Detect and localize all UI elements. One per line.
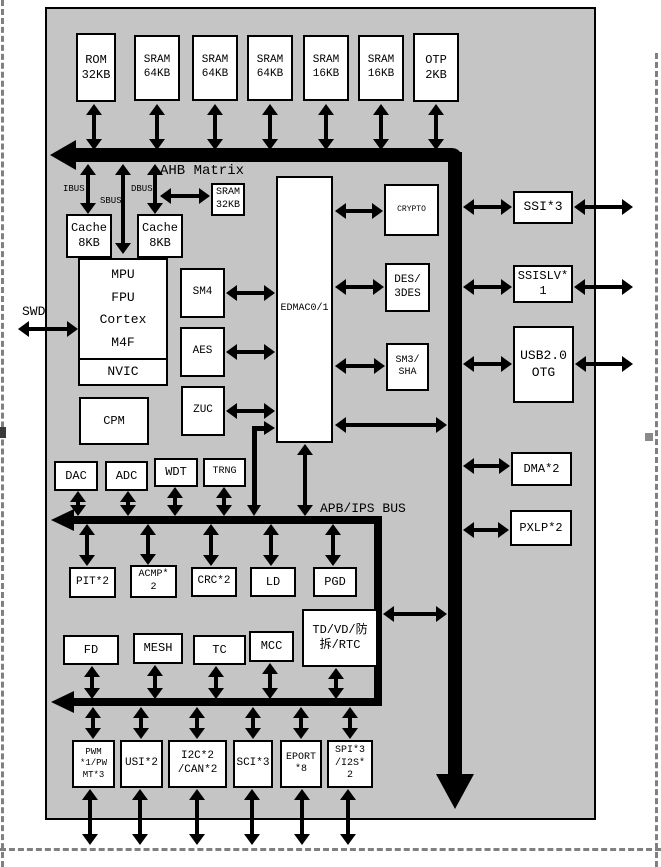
block-trng: TRNG — [203, 458, 246, 487]
arrow-fd-apb — [84, 666, 100, 699]
block-sram-16kb-2: SRAM 16KB — [358, 35, 404, 101]
block-sci: SCI*3 — [233, 740, 273, 788]
arrow-trng-apb — [216, 487, 232, 516]
arrow-apb-ld — [263, 524, 279, 566]
block-crc: CRC*2 — [191, 567, 237, 597]
arrow-ahb-dma — [463, 458, 510, 474]
block-otp: OTP 2KB — [413, 33, 459, 102]
block-mcc: MCC — [249, 631, 294, 662]
arrow-apb-eport — [293, 707, 309, 739]
block-eport: EPORT *8 — [280, 740, 322, 788]
arrow-sram1-ahb — [149, 104, 165, 150]
apb-ips-bus-label: APB/IPS BUS — [320, 501, 406, 516]
block-fd: FD — [63, 635, 119, 665]
arrow-usb-ext — [575, 356, 633, 372]
frame-handle-left[interactable] — [0, 427, 6, 438]
arrow-mesh-apb — [147, 665, 163, 699]
swd-label: SWD — [22, 304, 45, 319]
block-rom: ROM 32KB — [76, 33, 116, 102]
arrow-spi-ext — [340, 789, 356, 845]
block-crypto: CRYPTO — [384, 184, 439, 236]
arrow-apb-crc — [203, 524, 219, 566]
arrow-apb-pwm — [85, 707, 101, 739]
block-edmac: EDMAC0/1 — [276, 176, 333, 443]
cpu-fpu-label: FPU — [80, 290, 166, 306]
block-td-vd-rtc: TD/VD/防 拆/RTC — [302, 609, 378, 667]
arrow-apb-i2c — [189, 707, 205, 739]
block-sram-64kb-3: SRAM 64KB — [247, 35, 293, 101]
block-sram-16kb-1: SRAM 16KB — [303, 35, 349, 101]
arrow-ahb-ssislv — [463, 279, 512, 295]
block-spi-i2s: SPI*3 /I2S* 2 — [327, 740, 373, 788]
block-adc: ADC — [105, 461, 148, 491]
block-dac: DAC — [54, 461, 98, 491]
cpu-nvic-label: NVIC — [80, 358, 166, 384]
block-sram-64kb-1: SRAM 64KB — [134, 35, 180, 101]
block-cortex-m4f: MPU FPU Cortex M4F NVIC — [78, 258, 168, 386]
arrow-sram5-ahb — [373, 104, 389, 150]
block-usb-otg: USB2.0 OTG — [513, 326, 574, 403]
block-i2c-can: I2C*2 /CAN*2 — [168, 740, 227, 788]
arrow-sci-ext — [244, 789, 260, 845]
arrow-mcc-apb — [262, 663, 278, 699]
frame-dashed-bottom — [0, 848, 661, 851]
arrow-pwm-ext — [82, 789, 98, 845]
arrow-edmac-apb — [297, 444, 313, 516]
arrow-ssislv-ext — [574, 279, 633, 295]
arrow-tc-apb — [208, 666, 224, 699]
arrow-apb-acmp — [140, 524, 156, 565]
elbow-connector-right-arrowhead — [264, 421, 275, 435]
arrow-rom-ahb — [86, 104, 102, 150]
arrow-usi-ext — [132, 789, 148, 845]
ahb-bus-left-arrowhead — [50, 140, 76, 170]
elbow-connector-vertical — [252, 426, 257, 508]
block-zuc: ZUC — [181, 386, 225, 436]
block-ssislv: SSISLV* 1 — [513, 265, 573, 303]
block-cpm: CPM — [79, 397, 149, 445]
apb-bus-bottom-arrowhead — [51, 691, 74, 713]
arrow-swd — [18, 321, 78, 337]
block-wdt: WDT — [154, 458, 198, 487]
arrow-ssi-ext — [574, 199, 633, 215]
cpu-cortex-label: Cortex — [80, 312, 166, 328]
frame-handle-right[interactable] — [645, 433, 653, 441]
arrow-apb-pit — [79, 524, 95, 566]
arrow-sram3-ahb — [262, 104, 278, 150]
block-ld: LD — [250, 567, 296, 597]
block-pwm: PWM *1/PW MT*3 — [72, 740, 115, 788]
arrow-apb-spi — [342, 707, 358, 739]
elbow-connector-down-arrowhead — [247, 505, 261, 516]
ahb-matrix-label: AHB Matrix — [160, 163, 244, 179]
block-des-3des: DES/ 3DES — [385, 263, 430, 312]
block-pit: PIT*2 — [69, 567, 116, 598]
arrow-edmac-crypto — [335, 203, 383, 219]
arrow-eport-ext — [294, 789, 310, 845]
arrow-sbus — [115, 164, 131, 254]
cpu-mpu-label: MPU — [80, 267, 166, 283]
block-dma: DMA*2 — [511, 452, 572, 486]
cpu-core-label: M4F — [80, 335, 166, 351]
arrow-dac-apb — [70, 491, 86, 516]
block-pxlp: PXLP*2 — [510, 510, 572, 546]
arrow-adc-apb — [120, 491, 136, 516]
ahb-bus-vertical — [448, 152, 462, 776]
arrow-edmac-sm3 — [335, 358, 385, 374]
arrow-otp-ahb — [428, 104, 444, 150]
arrow-apb-usi — [133, 707, 149, 739]
arrow-aes-edmac — [226, 344, 275, 360]
arrow-apb-pgd — [325, 524, 341, 566]
block-mesh: MESH — [133, 633, 183, 664]
block-acmp: ACMP* 2 — [130, 565, 177, 598]
arrow-wdt-apb — [167, 487, 183, 516]
arrow-apb-sci — [245, 707, 261, 739]
arrow-ahb-pxlp — [463, 522, 509, 538]
arrow-apb-ahb-link — [383, 606, 447, 622]
apb-bus-top — [71, 516, 382, 524]
arrow-edmac-ahb — [335, 417, 447, 433]
document-page: MPU FPU Cortex M4F NVIC ROM 32KBSRAM 64K… — [0, 0, 661, 867]
block-aes: AES — [180, 327, 225, 377]
arrow-tdvd-apb — [328, 668, 344, 699]
block-pgd: PGD — [313, 567, 357, 597]
block-usi: USI*2 — [120, 740, 163, 788]
block-sram-64kb-2: SRAM 64KB — [192, 35, 238, 101]
arrow-sram2-ahb — [207, 104, 223, 150]
arrow-ibus — [80, 164, 96, 214]
block-sm4: SM4 — [180, 268, 225, 318]
ahb-bus-horizontal — [74, 148, 462, 162]
arrow-dbus-sram32 — [160, 188, 210, 204]
arrow-i2c-ext — [189, 789, 205, 845]
block-ssi: SSI*3 — [513, 191, 573, 224]
block-icache: Cache 8KB — [66, 214, 112, 258]
ahb-bus-down-arrowhead — [436, 774, 474, 809]
arrow-sm4-edmac — [226, 285, 275, 301]
arrow-ahb-usb — [463, 356, 512, 372]
frame-dashed-right — [655, 53, 658, 867]
block-sram-32kb: SRAM 32KB — [211, 183, 245, 216]
arrow-ahb-ssi — [463, 199, 512, 215]
apb-bus-bottom — [71, 698, 382, 706]
block-sm3-sha: SM3/ SHA — [386, 343, 429, 391]
block-tc: TC — [193, 635, 246, 665]
arrow-edmac-des — [335, 279, 384, 295]
block-dcache: Cache 8KB — [137, 214, 183, 258]
arrow-zuc-edmac — [226, 403, 275, 419]
arrow-sram4-ahb — [318, 104, 334, 150]
